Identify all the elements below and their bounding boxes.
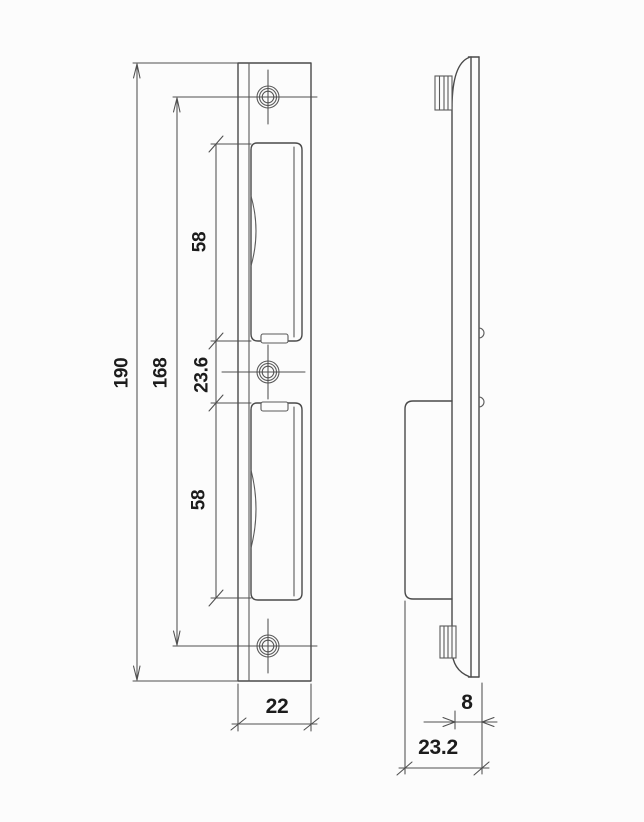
- technical-drawing: 190 168 58 23.6 58 22 8 23.2: [0, 0, 644, 822]
- dim-label-8: 8: [461, 691, 473, 714]
- tab-bump-lower: [479, 397, 484, 407]
- dim-label-23-2: 23.2: [418, 736, 458, 759]
- front-view: [133, 63, 319, 731]
- screw-hole-middle: [222, 345, 305, 399]
- screw-boss-bottom: [440, 626, 456, 658]
- latch-ramp-curve: [251, 196, 256, 266]
- dim-label-22: 22: [266, 695, 289, 718]
- dim-label-190: 190: [112, 358, 133, 389]
- tab-bump-upper: [479, 328, 484, 338]
- lower-latch-pocket: [251, 402, 302, 600]
- dimension-chain-58-23-6-58: [209, 136, 251, 606]
- side-view: [397, 57, 497, 775]
- latch-ramp-curve: [251, 470, 256, 548]
- dim-label-168: 168: [151, 358, 172, 389]
- dim-label-58-upper: 58: [190, 232, 211, 253]
- dimension-labels: 190 168 58 23.6 58 22 8 23.2: [112, 232, 474, 759]
- screw-boss-top: [435, 76, 452, 110]
- dim-label-23-6: 23.6: [192, 357, 213, 393]
- upper-latch-pocket: [251, 143, 302, 343]
- retainer-tab: [261, 402, 288, 411]
- dim-label-58-lower: 58: [189, 490, 210, 511]
- top-lip-curve: [452, 58, 469, 107]
- latch-pocket-housing-side: [405, 401, 452, 599]
- drawing-canvas: 190 168 58 23.6 58 22 8 23.2: [0, 0, 644, 822]
- strike-plate-side-profile: [452, 57, 484, 677]
- retainer-tab: [261, 334, 288, 343]
